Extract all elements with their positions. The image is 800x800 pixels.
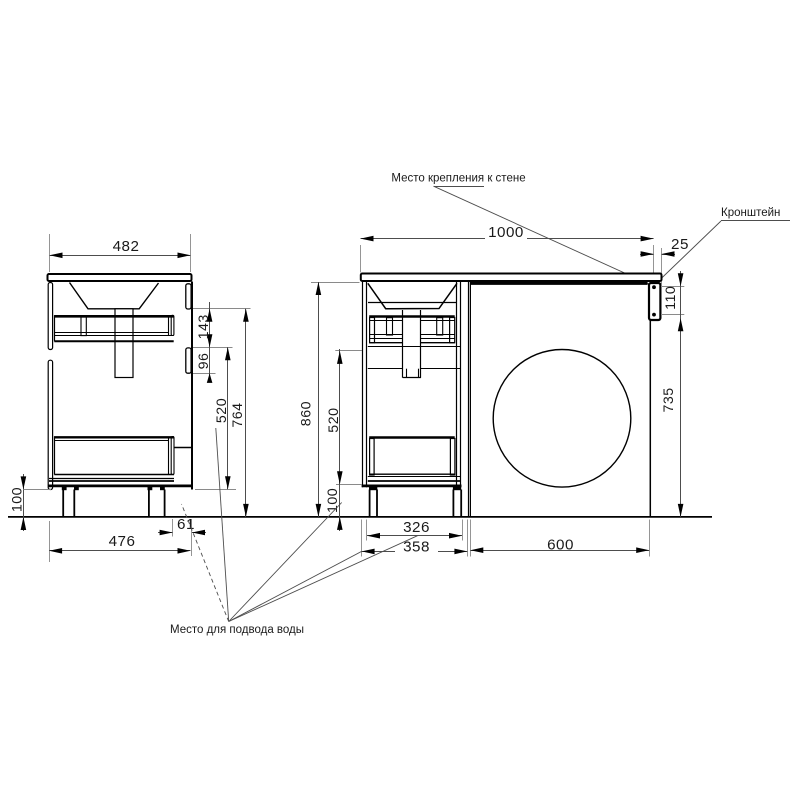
svg-text:Место крепления к стене: Место крепления к стене (391, 173, 525, 185)
svg-text:110: 110 (663, 286, 679, 310)
svg-text:476: 476 (109, 533, 136, 550)
svg-text:326: 326 (403, 519, 430, 536)
svg-text:520: 520 (326, 408, 342, 433)
svg-text:143: 143 (196, 314, 212, 339)
svg-text:520: 520 (214, 398, 230, 423)
svg-text:764: 764 (230, 402, 246, 427)
svg-text:100: 100 (325, 488, 341, 513)
svg-text:1000: 1000 (488, 224, 524, 241)
svg-text:Место для подвода воды: Место для подвода воды (170, 624, 304, 636)
svg-text:482: 482 (113, 238, 140, 255)
svg-text:Кронштейн: Кронштейн (721, 207, 780, 219)
svg-text:100: 100 (9, 487, 25, 512)
svg-text:735: 735 (661, 387, 677, 412)
svg-text:358: 358 (403, 539, 430, 556)
svg-text:96: 96 (196, 353, 212, 370)
svg-text:25: 25 (671, 236, 689, 253)
svg-text:860: 860 (299, 401, 315, 426)
svg-text:600: 600 (547, 537, 574, 554)
